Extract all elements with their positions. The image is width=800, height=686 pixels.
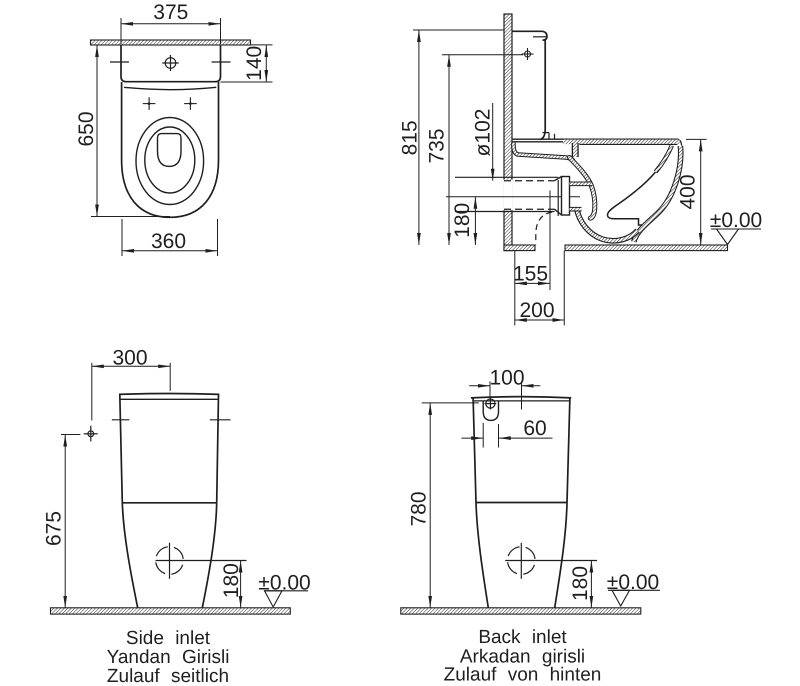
svg-text:155: 155 bbox=[513, 263, 548, 286]
svg-text:Yandan Girisli: Yandan Girisli bbox=[107, 647, 230, 668]
svg-text:400: 400 bbox=[677, 174, 700, 209]
svg-text:375: 375 bbox=[153, 1, 188, 24]
svg-text:Zulauf seitlich: Zulauf seitlich bbox=[107, 666, 229, 686]
svg-text:180: 180 bbox=[569, 566, 592, 601]
svg-text:780: 780 bbox=[408, 491, 431, 526]
svg-text:735: 735 bbox=[426, 128, 449, 163]
svg-text:±0.00: ±0.00 bbox=[258, 572, 310, 595]
svg-text:±0.00: ±0.00 bbox=[710, 209, 762, 232]
svg-text:180: 180 bbox=[220, 563, 243, 598]
svg-text:60: 60 bbox=[523, 417, 546, 440]
svg-text:300: 300 bbox=[112, 347, 147, 370]
svg-text:Zulauf von hinten: Zulauf von hinten bbox=[444, 665, 602, 686]
svg-text:650: 650 bbox=[75, 111, 98, 146]
svg-text:140: 140 bbox=[243, 46, 266, 81]
svg-text:815: 815 bbox=[399, 120, 422, 155]
svg-text:180: 180 bbox=[451, 203, 474, 238]
svg-text:ø102: ø102 bbox=[472, 109, 495, 157]
svg-text:±0.00: ±0.00 bbox=[607, 571, 659, 594]
svg-text:Side inlet: Side inlet bbox=[126, 628, 211, 649]
svg-text:Back inlet: Back inlet bbox=[478, 627, 567, 648]
svg-text:100: 100 bbox=[489, 367, 524, 390]
svg-text:675: 675 bbox=[43, 511, 66, 546]
svg-text:360: 360 bbox=[151, 230, 186, 253]
svg-text:200: 200 bbox=[519, 299, 554, 322]
